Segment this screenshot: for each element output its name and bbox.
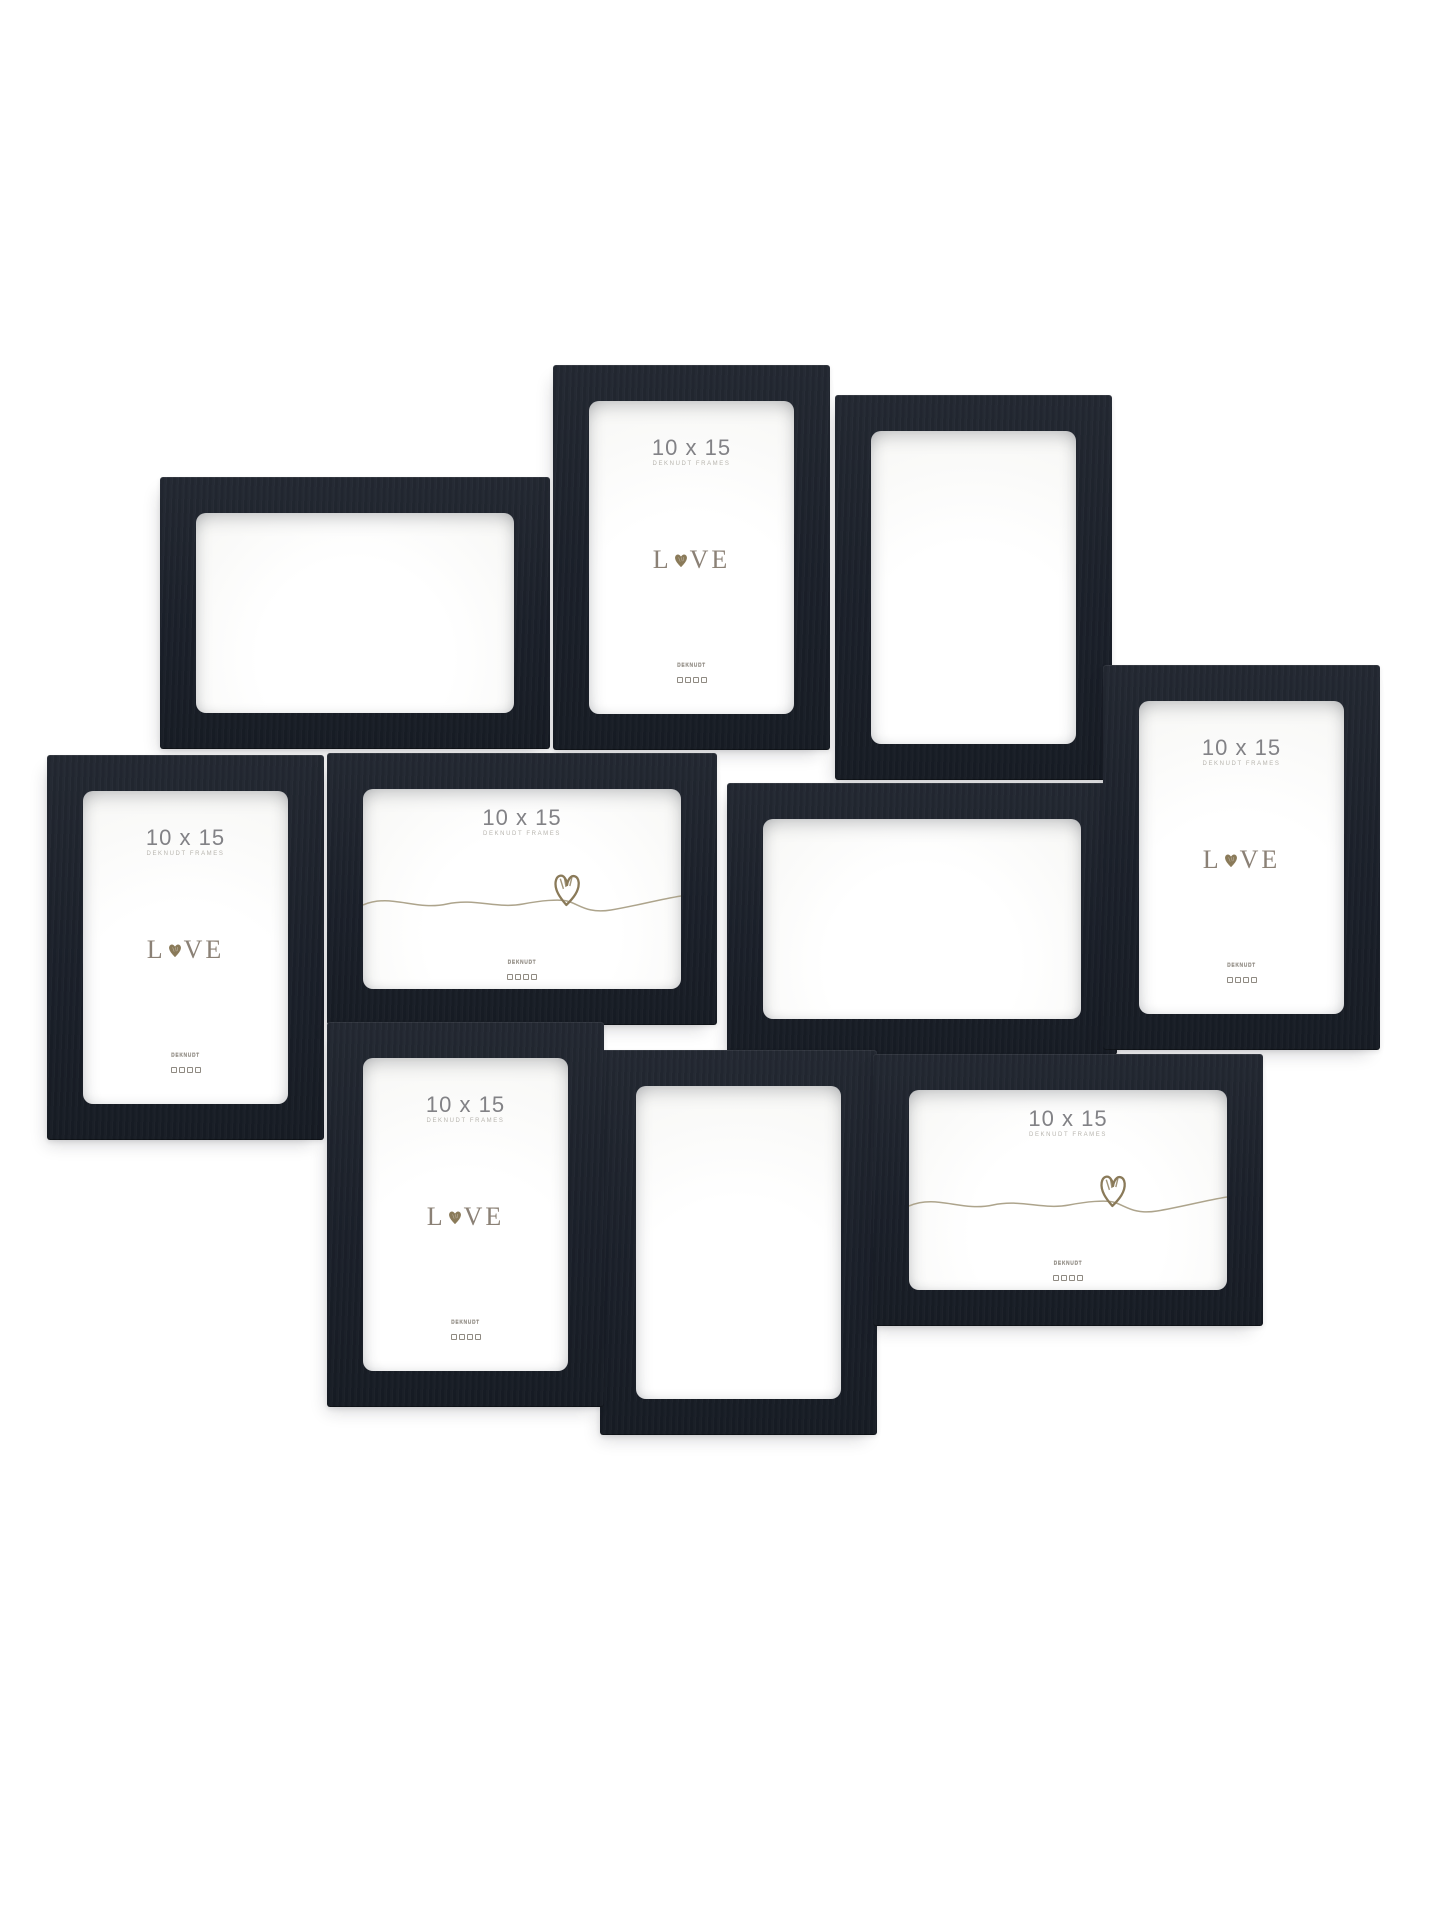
- photo-opening: 10 x 15 DEKNUDT FRAMES LVE DEKNUDT: [363, 1058, 568, 1371]
- size-label: 10 x 15: [909, 1106, 1227, 1132]
- photo-insert-heartline: 10 x 15 DEKNUDT FRAMES DEKNUDT: [363, 789, 681, 989]
- brand-label: DEKNUDT FRAMES: [909, 1132, 1227, 1138]
- love-letter-l: L: [653, 545, 672, 574]
- photo-frame-8-love: 10 x 15 DEKNUDT FRAMES LVE DEKNUDT: [327, 1022, 604, 1407]
- heart-line-doodle: [909, 1160, 1227, 1220]
- heart-icon: [1223, 852, 1239, 869]
- deknudt-logo-text: DEKNUDT: [83, 1054, 288, 1059]
- photo-insert-love: 10 x 15 DEKNUDT FRAMES LVE DEKNUDT: [83, 791, 288, 1104]
- photo-insert-heartline: 10 x 15 DEKNUDT FRAMES DEKNUDT: [909, 1090, 1227, 1290]
- love-letters-ve: VE: [184, 935, 225, 964]
- deknudt-logo: DEKNUDT: [909, 1262, 1227, 1285]
- photo-frame-2-love: 10 x 15 DEKNUDT FRAMES LVE DEKNUDT: [553, 365, 830, 750]
- photo-opening: 10 x 15 DEKNUDT FRAMES LVE DEKNUDT: [589, 401, 794, 714]
- photo-opening: 10 x 15 DEKNUDT FRAMES LVE DEKNUDT: [83, 791, 288, 1104]
- photo-opening-empty: [196, 513, 514, 713]
- photo-frame-3-empty: [835, 395, 1112, 780]
- deknudt-logo-text: DEKNUDT: [1139, 964, 1344, 969]
- love-letter-l: L: [427, 1202, 446, 1231]
- squiggle-line-icon: [363, 859, 681, 919]
- heart-line-doodle: [363, 859, 681, 919]
- photo-frame-1-empty: [160, 477, 550, 749]
- size-label: 10 x 15: [363, 805, 681, 831]
- love-letters-ve: VE: [464, 1202, 505, 1231]
- deknudt-logo-text: DEKNUDT: [363, 1321, 568, 1326]
- love-text: LVE: [83, 935, 288, 965]
- size-label: 10 x 15: [1139, 735, 1344, 761]
- brand-label: DEKNUDT FRAMES: [363, 831, 681, 837]
- deknudt-logo: DEKNUDT: [1139, 964, 1344, 987]
- product-photo: 10 x 15 DEKNUDT FRAMES LVE DEKNUDT 10 x …: [0, 0, 1451, 1920]
- photo-frame-5-squiggle: 10 x 15 DEKNUDT FRAMES DEKNUDT: [327, 753, 717, 1025]
- photo-insert-love: 10 x 15 DEKNUDT FRAMES LVE DEKNUDT: [589, 401, 794, 714]
- photo-opening-empty: [763, 819, 1081, 1019]
- heart-icon: [673, 552, 689, 569]
- photo-opening: 10 x 15 DEKNUDT FRAMES LVE DEKNUDT: [1139, 701, 1344, 1014]
- love-text: LVE: [363, 1202, 568, 1232]
- deknudt-logo-text: DEKNUDT: [909, 1262, 1227, 1267]
- love-letters-ve: VE: [690, 545, 731, 574]
- deknudt-logo: DEKNUDT: [589, 664, 794, 687]
- love-letter-l: L: [147, 935, 166, 964]
- deknudt-logo-text: DEKNUDT: [363, 961, 681, 966]
- deknudt-logo-boxes: [909, 1269, 1227, 1285]
- photo-insert-love: 10 x 15 DEKNUDT FRAMES LVE DEKNUDT: [1139, 701, 1344, 1014]
- brand-label: DEKNUDT FRAMES: [363, 1118, 568, 1124]
- deknudt-logo-boxes: [363, 968, 681, 984]
- photo-frame-6-empty: [727, 783, 1117, 1055]
- deknudt-logo: DEKNUDT: [363, 961, 681, 984]
- size-label: 10 x 15: [589, 435, 794, 461]
- deknudt-logo-boxes: [83, 1061, 288, 1077]
- photo-opening: 10 x 15 DEKNUDT FRAMES DEKNUDT: [363, 789, 681, 989]
- size-label: 10 x 15: [83, 825, 288, 851]
- brand-label: DEKNUDT FRAMES: [1139, 761, 1344, 767]
- photo-frame-10-squiggle: 10 x 15 DEKNUDT FRAMES DEKNUDT: [873, 1054, 1263, 1326]
- brand-label: DEKNUDT FRAMES: [83, 851, 288, 857]
- love-text: LVE: [589, 545, 794, 575]
- deknudt-logo-boxes: [589, 671, 794, 687]
- deknudt-logo-boxes: [1139, 971, 1344, 987]
- deknudt-logo-boxes: [363, 1328, 568, 1344]
- photo-frame-4-love: 10 x 15 DEKNUDT FRAMES LVE DEKNUDT: [47, 755, 324, 1140]
- heart-icon: [167, 942, 183, 959]
- heart-icon: [447, 1209, 463, 1226]
- photo-opening-empty: [871, 431, 1076, 744]
- photo-opening: 10 x 15 DEKNUDT FRAMES DEKNUDT: [909, 1090, 1227, 1290]
- photo-insert-love: 10 x 15 DEKNUDT FRAMES LVE DEKNUDT: [363, 1058, 568, 1371]
- photo-opening-empty: [636, 1086, 841, 1399]
- size-label: 10 x 15: [363, 1092, 568, 1118]
- photo-frame-9-empty: [600, 1050, 877, 1435]
- deknudt-logo: DEKNUDT: [83, 1054, 288, 1077]
- love-text: LVE: [1139, 845, 1344, 875]
- love-letter-l: L: [1203, 845, 1222, 874]
- squiggle-line-icon: [909, 1160, 1227, 1220]
- deknudt-logo-text: DEKNUDT: [589, 664, 794, 669]
- deknudt-logo: DEKNUDT: [363, 1321, 568, 1344]
- photo-frame-7-love: 10 x 15 DEKNUDT FRAMES LVE DEKNUDT: [1103, 665, 1380, 1050]
- love-letters-ve: VE: [1240, 845, 1281, 874]
- brand-label: DEKNUDT FRAMES: [589, 461, 794, 467]
